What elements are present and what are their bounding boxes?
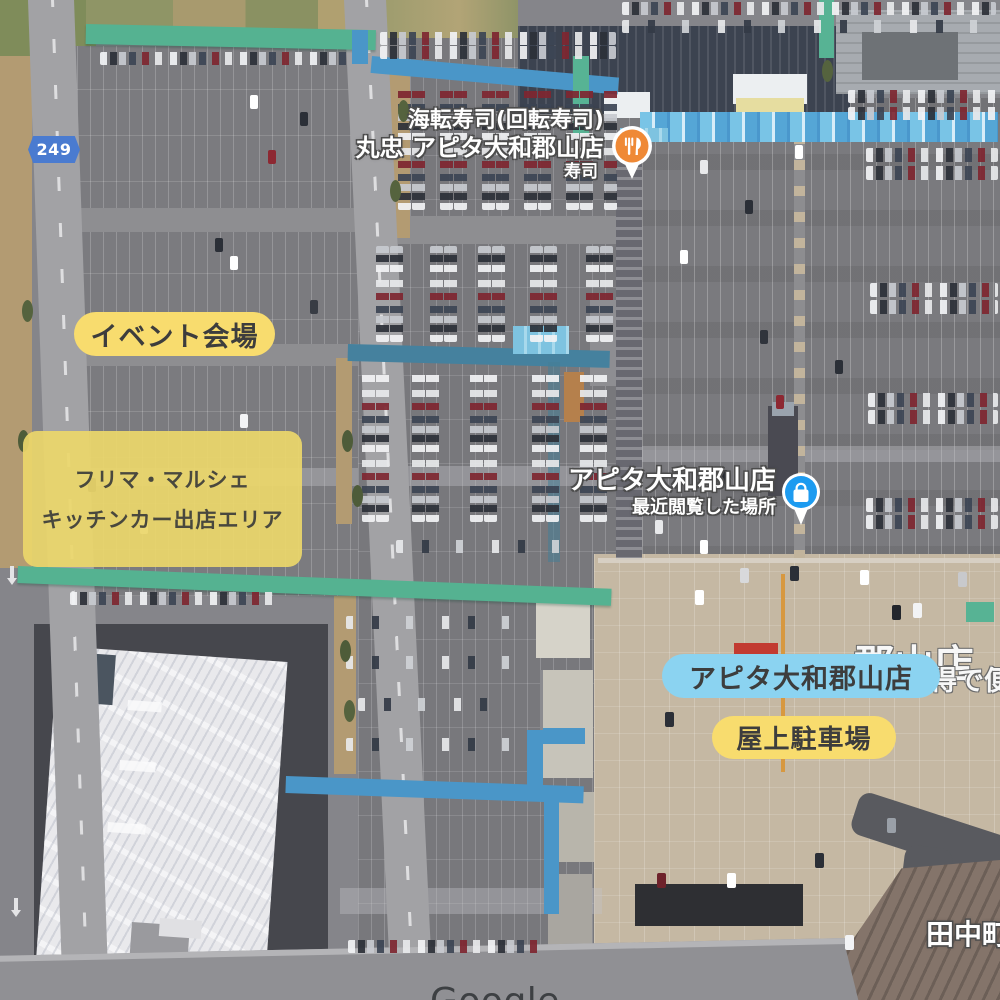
poi-label-apita[interactable]: アピタ大和郡山店 最近閲覧した場所 — [548, 466, 776, 518]
parked-car-column — [362, 372, 375, 522]
parked-car-column — [376, 372, 389, 522]
parked-car-column — [390, 246, 403, 342]
parked-car-row — [70, 592, 276, 605]
parked-car-row — [848, 90, 998, 103]
parked-cars — [695, 590, 704, 605]
poi-apita-name: アピタ大和郡山店 — [548, 466, 776, 497]
parked-car-row — [380, 32, 616, 45]
parking-aisle — [620, 446, 1000, 462]
covered-walkway — [544, 794, 559, 914]
google-attribution[interactable]: Google — [430, 981, 560, 1000]
annotation-rooftop-parking: 屋上駐車場 — [712, 716, 896, 759]
rooftop-equipment — [635, 884, 803, 926]
district-label: 田中町 — [926, 918, 1000, 951]
covered-walkway — [543, 728, 585, 744]
parked-car-row — [622, 2, 996, 15]
parked-car-row — [848, 107, 998, 120]
shopping-bag-pin-icon[interactable] — [779, 471, 823, 531]
stair-tower — [772, 402, 794, 416]
route-249-badge: 249 — [28, 136, 80, 163]
parked-car-column — [444, 246, 457, 342]
parked-car-column — [532, 372, 545, 522]
parked-cars — [700, 160, 708, 174]
parked-car-row — [396, 540, 588, 553]
small-building — [159, 918, 202, 939]
parked-car-column — [426, 372, 439, 522]
parked-car-column — [600, 246, 613, 342]
route-249-number: 249 — [37, 140, 72, 159]
parked-car-row — [870, 283, 998, 297]
poi-apita-subtitle: 最近閲覧した場所 — [548, 497, 776, 518]
service-structure — [540, 670, 593, 778]
annotation-vendor-area-line2: キッチンカー出店エリア — [42, 504, 284, 534]
parked-car-column — [430, 246, 443, 342]
trees — [352, 485, 363, 507]
road-marking-arrow — [14, 898, 18, 912]
rooftop-painted-slogan-fragment: 得で便 — [930, 666, 1000, 698]
parked-cars — [250, 95, 258, 109]
parked-car-column — [544, 246, 557, 342]
parked-car-row — [870, 300, 998, 314]
deck-parapet — [598, 558, 1000, 563]
parking-aisle — [374, 216, 622, 244]
parked-car-row — [100, 52, 352, 65]
parked-car-row — [380, 46, 616, 59]
parked-car-row — [866, 515, 998, 529]
poi-sushi-name-line1: 海転寿司(回転寿司) — [330, 108, 604, 134]
parked-car-row — [348, 940, 540, 953]
satellite-map-canvas[interactable]: 249 海転寿司(回転寿司) 丸忠 アピタ大和郡山店 寿司 アピタ大和郡山店 最… — [0, 0, 1000, 1000]
parked-car-row — [868, 410, 998, 424]
parked-car-column — [478, 246, 491, 342]
parked-car-column — [470, 372, 483, 522]
parked-car-row — [866, 148, 998, 162]
parking-aisle — [66, 208, 358, 232]
parked-car-row — [868, 393, 998, 407]
parked-car-row — [346, 656, 522, 669]
parked-car-column — [412, 372, 425, 522]
parked-car-row — [358, 698, 514, 711]
annotation-vendor-area: フリマ・マルシェ キッチンカー出店エリア — [23, 431, 302, 567]
parked-car-column — [376, 246, 389, 342]
parked-car-column — [530, 246, 543, 342]
dirt-strip — [336, 358, 352, 524]
store-roof-inner — [862, 32, 958, 80]
poi-label-sushi[interactable]: 海転寿司(回転寿司) 丸忠 アピタ大和郡山店 寿司 — [330, 108, 604, 182]
poi-sushi-category: 寿司 — [330, 162, 604, 182]
covered-walkway — [352, 30, 368, 64]
canopy — [966, 602, 994, 622]
road-marking-arrow — [10, 566, 14, 580]
parked-car-row — [866, 498, 998, 512]
restaurant-pin-icon[interactable] — [610, 125, 654, 185]
parked-car-column — [484, 372, 497, 522]
annotation-event-venue: イベント会場 — [74, 312, 275, 356]
parked-car-row — [866, 166, 998, 180]
parked-car-row — [346, 616, 522, 629]
annotation-vendor-area-line1: フリマ・マルシェ — [75, 464, 251, 494]
annotation-store-name: アピタ大和郡山店 — [662, 654, 940, 698]
poi-sushi-name-line2: 丸忠 アピタ大和郡山店 — [330, 134, 604, 162]
parked-car-column — [492, 246, 505, 342]
covered-walkway — [527, 730, 543, 798]
parked-car-row — [346, 738, 516, 751]
parked-car-row — [622, 20, 996, 33]
parked-car-column — [586, 246, 599, 342]
